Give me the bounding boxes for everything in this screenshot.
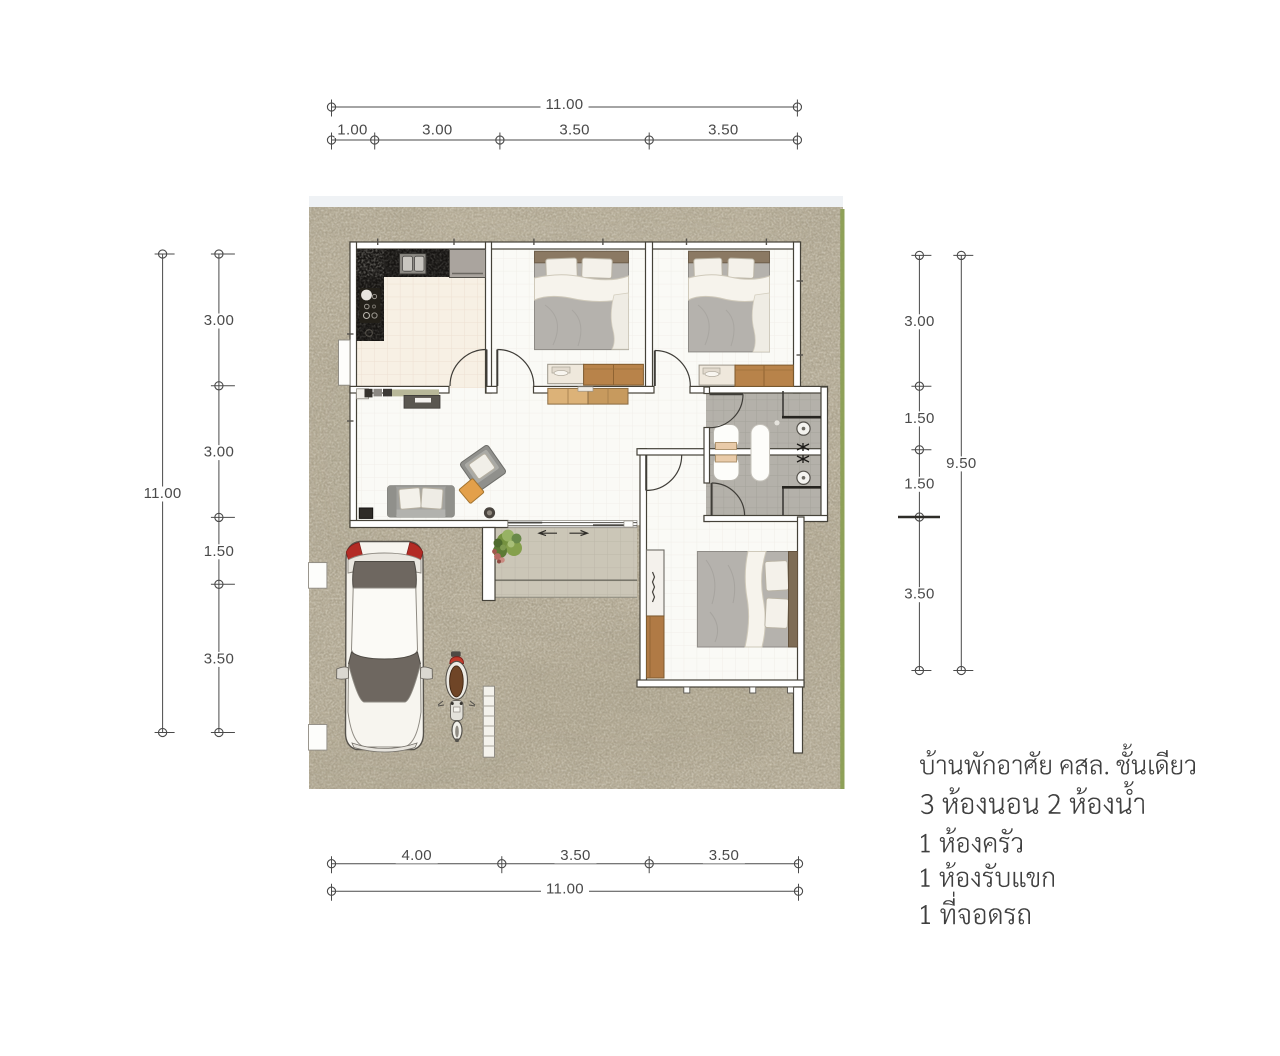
svg-text:1.50: 1.50 xyxy=(204,543,234,560)
svg-text:4.00: 4.00 xyxy=(401,847,431,864)
svg-text:9.50: 9.50 xyxy=(946,455,976,472)
svg-text:1.50: 1.50 xyxy=(904,475,934,492)
svg-text:3.50: 3.50 xyxy=(708,122,738,139)
svg-text:11.00: 11.00 xyxy=(546,881,584,898)
svg-text:11.00: 11.00 xyxy=(546,96,584,113)
svg-text:3.50: 3.50 xyxy=(709,847,739,864)
svg-text:3.00: 3.00 xyxy=(904,313,934,330)
svg-text:3.50: 3.50 xyxy=(204,650,234,667)
svg-text:3.50: 3.50 xyxy=(559,122,589,139)
svg-text:11.00: 11.00 xyxy=(144,485,182,502)
svg-text:3.50: 3.50 xyxy=(904,586,934,603)
svg-text:3.00: 3.00 xyxy=(204,444,234,461)
svg-text:1.00: 1.00 xyxy=(337,122,367,139)
svg-text:1.50: 1.50 xyxy=(904,410,934,427)
svg-text:3.00: 3.00 xyxy=(422,122,452,139)
svg-text:3.50: 3.50 xyxy=(560,847,590,864)
svg-text:3.00: 3.00 xyxy=(204,312,234,329)
